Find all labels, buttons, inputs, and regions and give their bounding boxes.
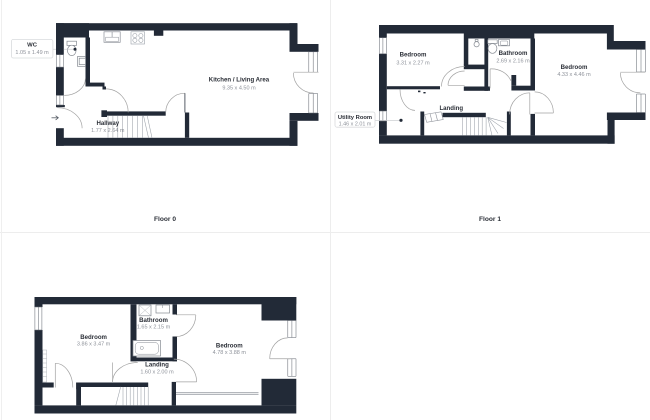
svg-text:9.35 x 4.50 m: 9.35 x 4.50 m bbox=[222, 86, 256, 92]
svg-text:4.33 x 4.46 m: 4.33 x 4.46 m bbox=[557, 72, 591, 78]
svg-text:1.05 x 1.49 m: 1.05 x 1.49 m bbox=[15, 50, 49, 56]
svg-text:Landing: Landing bbox=[145, 362, 169, 369]
svg-text:Bedroom: Bedroom bbox=[561, 64, 588, 71]
svg-text:Utility Room: Utility Room bbox=[338, 115, 372, 121]
svg-text:Bedroom: Bedroom bbox=[216, 342, 243, 349]
svg-text:Floor 0: Floor 0 bbox=[154, 216, 176, 223]
svg-text:4.78 x 3.88 m: 4.78 x 3.88 m bbox=[213, 350, 247, 356]
svg-text:Bedroom: Bedroom bbox=[80, 334, 107, 341]
svg-text:Bathroom: Bathroom bbox=[499, 50, 528, 57]
svg-text:1.46 x 2.01 m: 1.46 x 2.01 m bbox=[339, 121, 372, 127]
svg-text:Bathroom: Bathroom bbox=[139, 317, 168, 324]
svg-text:Landing: Landing bbox=[439, 105, 463, 112]
svg-text:1.65 x 2.15 m: 1.65 x 2.15 m bbox=[137, 325, 171, 331]
svg-text:2.69 x 2.16 m: 2.69 x 2.16 m bbox=[496, 59, 530, 65]
svg-text:Hallway: Hallway bbox=[96, 120, 119, 127]
svg-text:3.86 x 3.47 m: 3.86 x 3.47 m bbox=[77, 341, 111, 347]
svg-text:Bedroom: Bedroom bbox=[400, 51, 427, 58]
svg-text:Kitchen / Living Area: Kitchen / Living Area bbox=[209, 76, 270, 83]
svg-text:1.60 x 2.00 m: 1.60 x 2.00 m bbox=[140, 370, 174, 376]
svg-text:3.31 x 2.27 m: 3.31 x 2.27 m bbox=[396, 60, 430, 66]
svg-text:Floor 1: Floor 1 bbox=[479, 216, 501, 223]
svg-text:WC: WC bbox=[27, 43, 38, 49]
svg-text:1.77 x 2.64 m: 1.77 x 2.64 m bbox=[91, 128, 125, 134]
